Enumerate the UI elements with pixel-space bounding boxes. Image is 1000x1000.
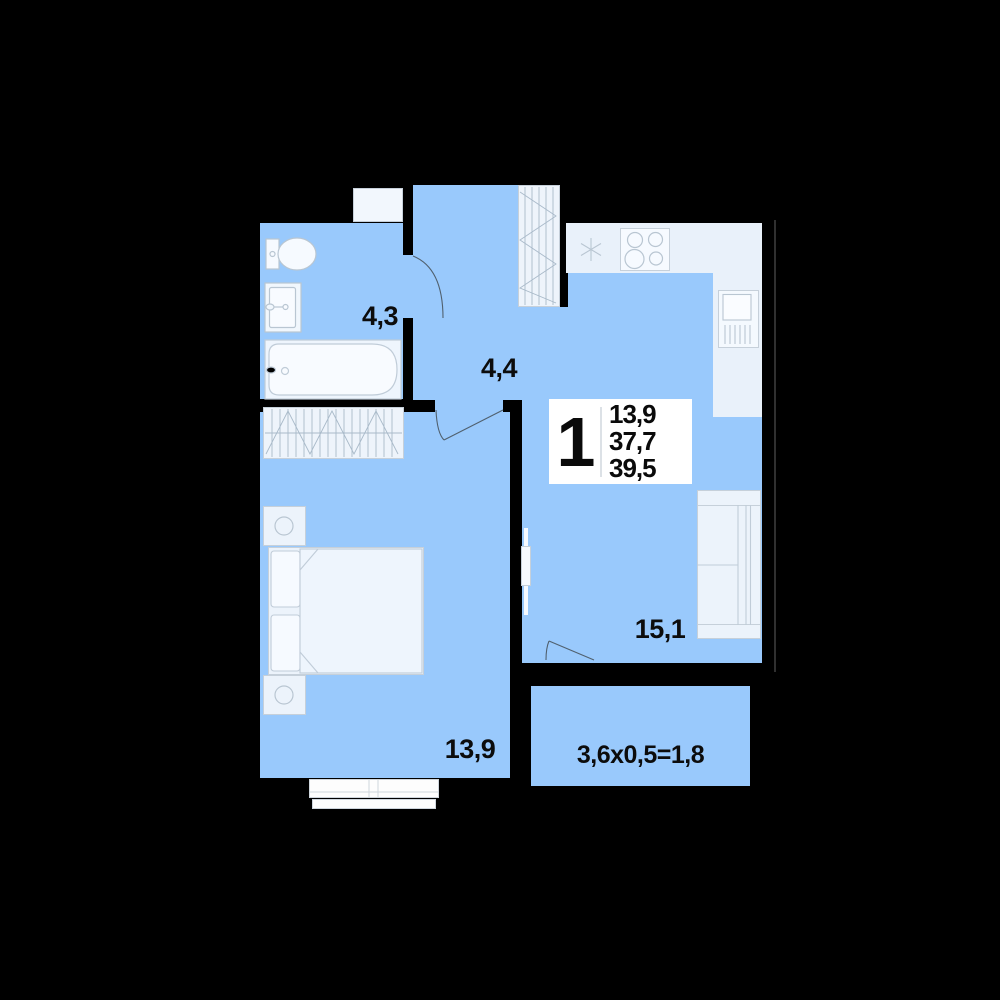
unit-area-living: 13,9	[609, 401, 656, 428]
sofa-armrest-bottom	[697, 624, 761, 639]
floorplan-canvas: 4,3 4,4 13,9 15,1 3,6x0,5=1,8 1 13,9 37,…	[0, 0, 1000, 1000]
sofa-armrest-top	[697, 490, 761, 506]
stove	[620, 228, 670, 271]
unit-area-main: 37,7	[609, 428, 656, 455]
bedroom-window-sill	[312, 799, 436, 809]
bedroom-door-opening	[435, 400, 503, 412]
hallway-kitchen-opening	[560, 307, 568, 400]
info-divider	[600, 407, 602, 477]
nightstand-top	[263, 506, 306, 546]
unit-rooms-count: 1	[551, 403, 599, 481]
unit-areas: 13,9 37,7 39,5	[609, 401, 656, 482]
label-kitchen-living-area: 15,1	[625, 614, 695, 645]
nightstand-bottom	[263, 675, 306, 715]
sofa-body	[697, 505, 761, 625]
bedroom-wardrobe	[263, 407, 404, 459]
vent-shaft-box	[353, 188, 403, 222]
kitchen-sink-cabinet	[718, 290, 759, 348]
hallway-closet	[518, 185, 560, 307]
label-balcony-area: 3,6x0,5=1,8	[531, 741, 750, 770]
label-hallway-area: 4,4	[469, 353, 529, 384]
tv-bracket	[521, 546, 531, 586]
label-bedroom-area: 13,9	[435, 734, 505, 765]
bedroom-window	[309, 779, 439, 798]
label-bathroom-area: 4,3	[350, 301, 410, 332]
room-balcony	[531, 686, 750, 786]
unit-area-total: 39,5	[609, 455, 656, 482]
bed	[268, 547, 424, 675]
